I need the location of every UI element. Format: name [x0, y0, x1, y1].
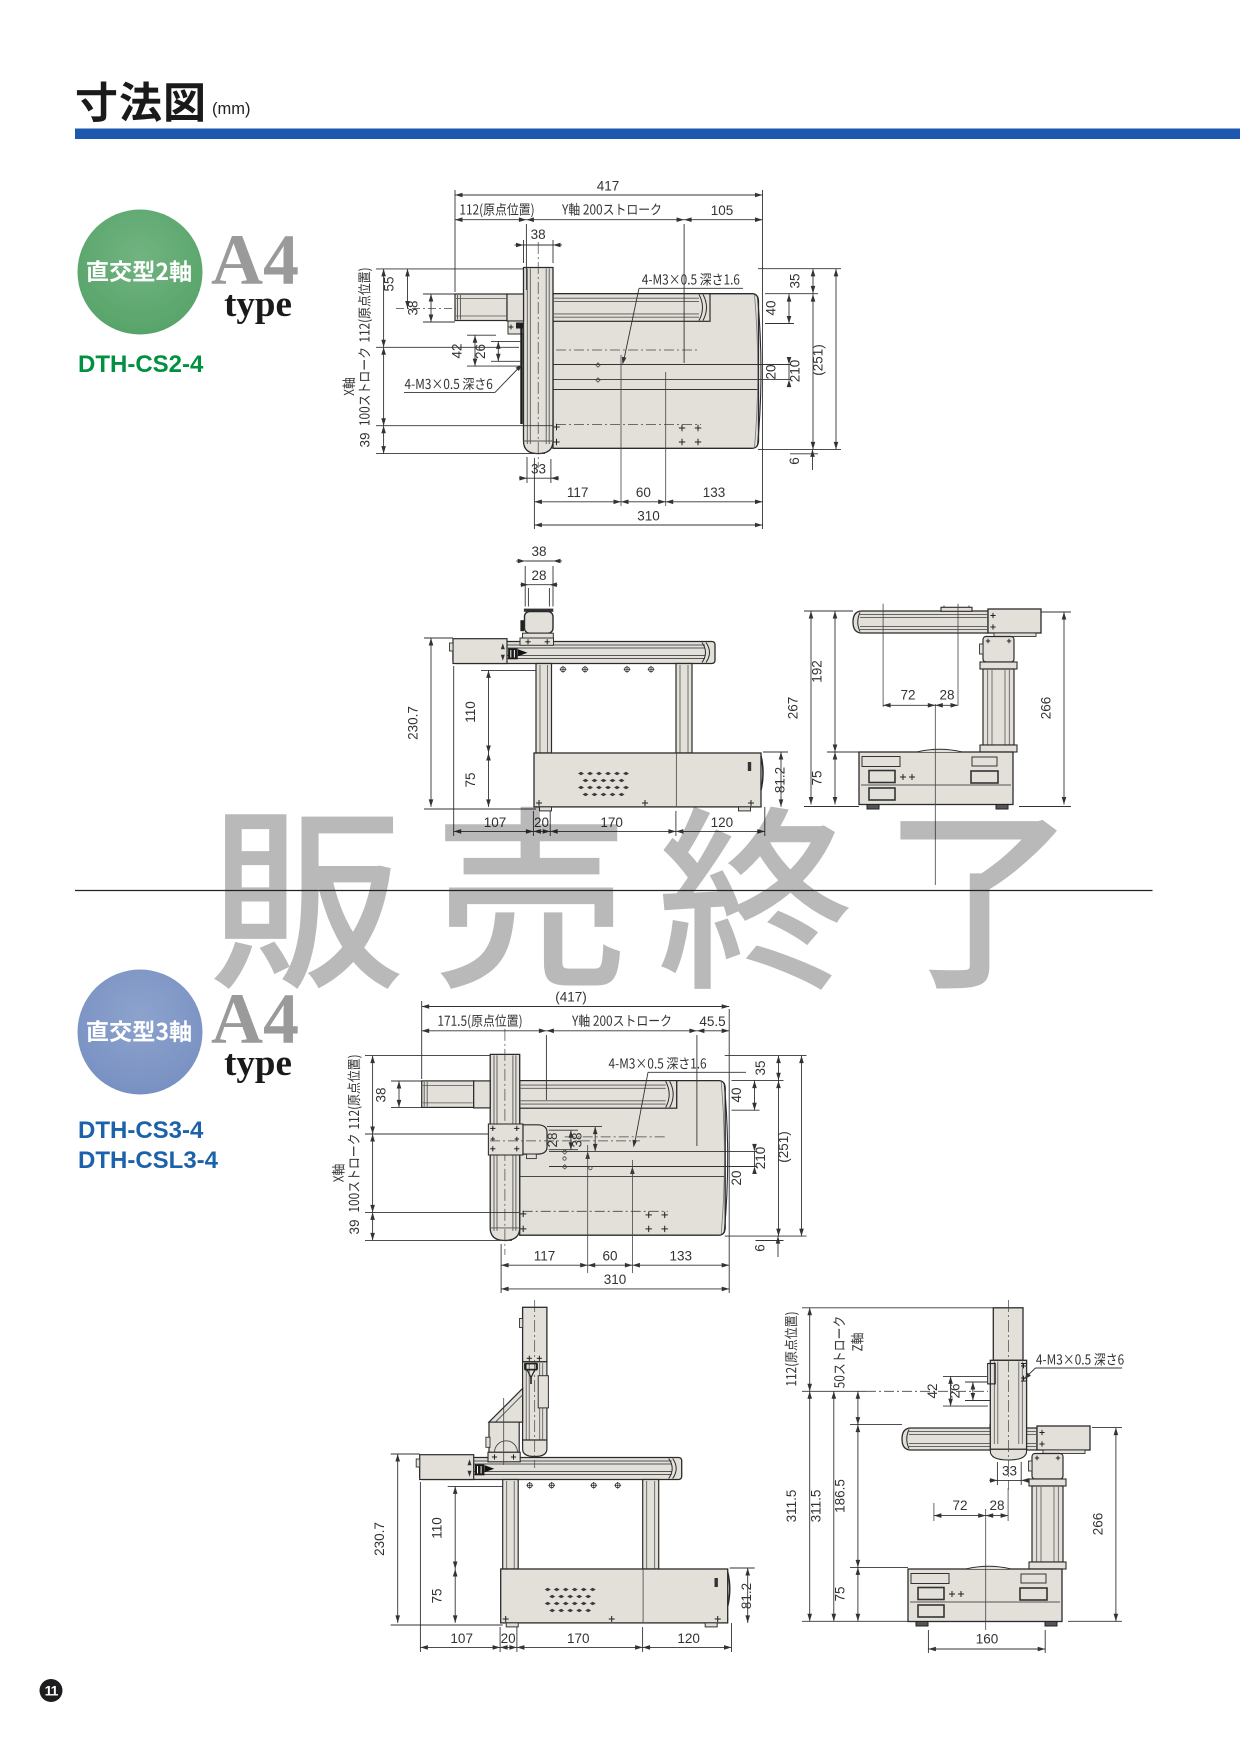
svg-text:311.5: 311.5: [808, 1490, 823, 1523]
svg-text:81.2: 81.2: [773, 767, 788, 793]
svg-text:105: 105: [711, 203, 734, 218]
svg-text:72: 72: [900, 688, 915, 703]
svg-text:267: 267: [786, 697, 801, 720]
svg-text:210: 210: [788, 360, 803, 383]
svg-text:55: 55: [382, 276, 397, 291]
svg-text:39: 39: [347, 1219, 362, 1234]
svg-text:26: 26: [473, 344, 488, 359]
svg-text:28: 28: [531, 568, 546, 583]
svg-text:35: 35: [788, 273, 803, 288]
svg-text:35: 35: [753, 1060, 768, 1075]
svg-text:45.5: 45.5: [699, 1014, 725, 1029]
svg-text:33: 33: [531, 462, 546, 477]
svg-text:75: 75: [463, 772, 478, 787]
svg-text:133: 133: [703, 485, 726, 500]
svg-text:266: 266: [1090, 1513, 1105, 1536]
svg-text:110: 110: [463, 701, 478, 723]
svg-text:72: 72: [952, 1498, 967, 1513]
svg-text:(mm): (mm): [212, 100, 250, 118]
svg-text:20: 20: [729, 1170, 744, 1185]
svg-text:186.5: 186.5: [832, 1479, 847, 1513]
svg-text:33: 33: [1002, 1464, 1017, 1479]
svg-text:28: 28: [939, 688, 954, 703]
svg-text:417: 417: [597, 179, 620, 194]
svg-text:192: 192: [810, 660, 825, 683]
svg-text:107: 107: [450, 1631, 473, 1646]
svg-text:39: 39: [358, 432, 373, 447]
svg-text:38: 38: [406, 300, 421, 315]
svg-text:28: 28: [545, 1132, 560, 1147]
svg-text:133: 133: [670, 1248, 693, 1263]
svg-text:60: 60: [636, 485, 651, 500]
svg-text:120: 120: [677, 1631, 700, 1646]
svg-text:60: 60: [602, 1248, 617, 1263]
svg-text:38: 38: [374, 1087, 389, 1102]
svg-text:75: 75: [430, 1588, 445, 1603]
svg-text:6: 6: [787, 457, 802, 465]
svg-text:type: type: [224, 284, 292, 325]
svg-text:81.2: 81.2: [739, 1583, 754, 1609]
svg-text:310: 310: [604, 1272, 627, 1287]
svg-text:110: 110: [430, 1517, 445, 1539]
svg-text:311.5: 311.5: [784, 1490, 799, 1523]
svg-text:310: 310: [637, 508, 660, 523]
svg-text:117: 117: [567, 485, 589, 500]
svg-text:38: 38: [531, 227, 546, 242]
svg-text:75: 75: [810, 770, 825, 785]
svg-text:(417): (417): [555, 990, 587, 1005]
svg-text:DTH-CS3-4: DTH-CS3-4: [78, 1117, 204, 1144]
svg-text:20: 20: [764, 364, 779, 379]
svg-text:40: 40: [729, 1087, 744, 1102]
svg-text:38: 38: [569, 1132, 584, 1147]
svg-text:type: type: [224, 1043, 292, 1084]
svg-text:38: 38: [531, 544, 546, 559]
svg-text:170: 170: [567, 1631, 590, 1646]
svg-text:20: 20: [501, 1631, 516, 1646]
svg-text:6: 6: [753, 1244, 768, 1252]
svg-text:DTH-CSL3-4: DTH-CSL3-4: [78, 1147, 219, 1174]
svg-text:230.7: 230.7: [406, 706, 421, 740]
svg-text:210: 210: [753, 1147, 768, 1170]
svg-text:26: 26: [947, 1383, 962, 1398]
svg-text:28: 28: [989, 1498, 1004, 1513]
svg-text:11: 11: [45, 1683, 59, 1699]
svg-text:160: 160: [976, 1632, 999, 1647]
svg-text:DTH-CS2-4: DTH-CS2-4: [78, 351, 204, 378]
svg-text:75: 75: [832, 1586, 847, 1601]
svg-text:230.7: 230.7: [372, 1522, 387, 1556]
svg-text:266: 266: [1039, 697, 1054, 720]
svg-text:40: 40: [764, 300, 779, 315]
svg-text:120: 120: [711, 815, 734, 830]
svg-text:117: 117: [534, 1248, 556, 1263]
svg-text:42: 42: [925, 1383, 940, 1398]
svg-text:42: 42: [450, 343, 465, 358]
